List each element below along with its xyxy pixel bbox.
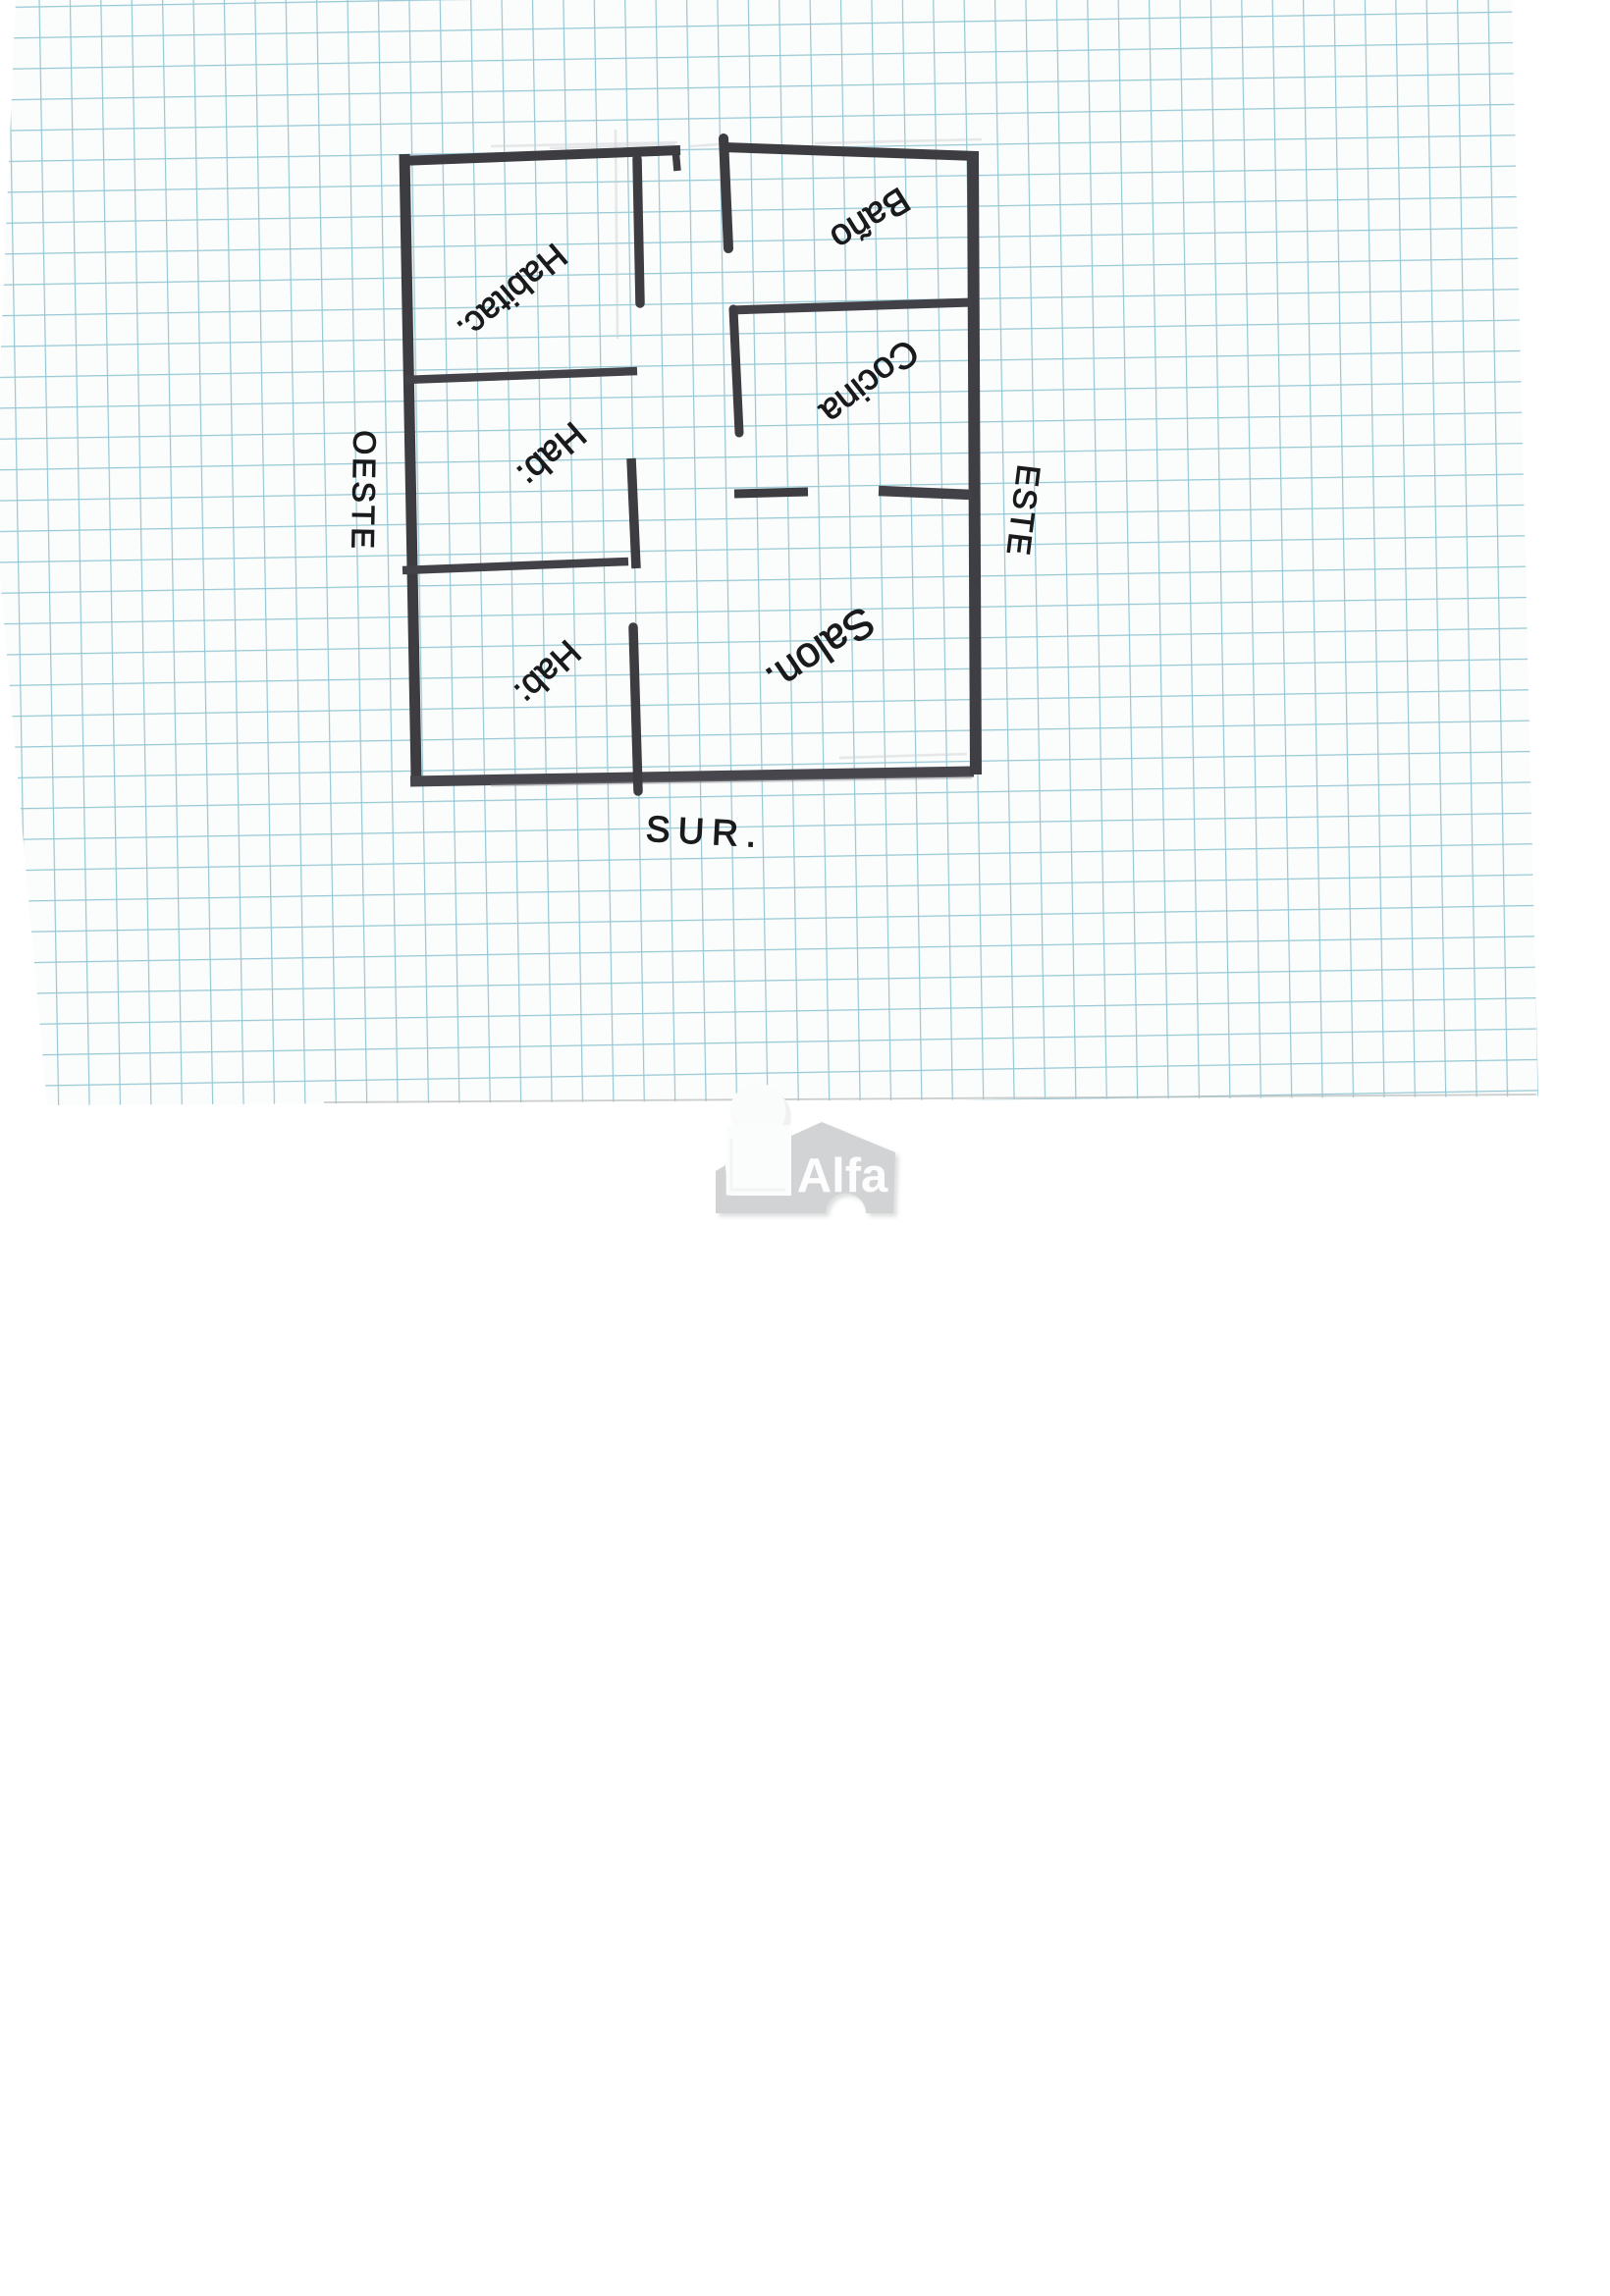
svg-text:SUR.: SUR. (645, 809, 765, 855)
svg-text:OESTE: OESTE (345, 430, 382, 552)
svg-text:Alfa: Alfa (797, 1149, 888, 1202)
